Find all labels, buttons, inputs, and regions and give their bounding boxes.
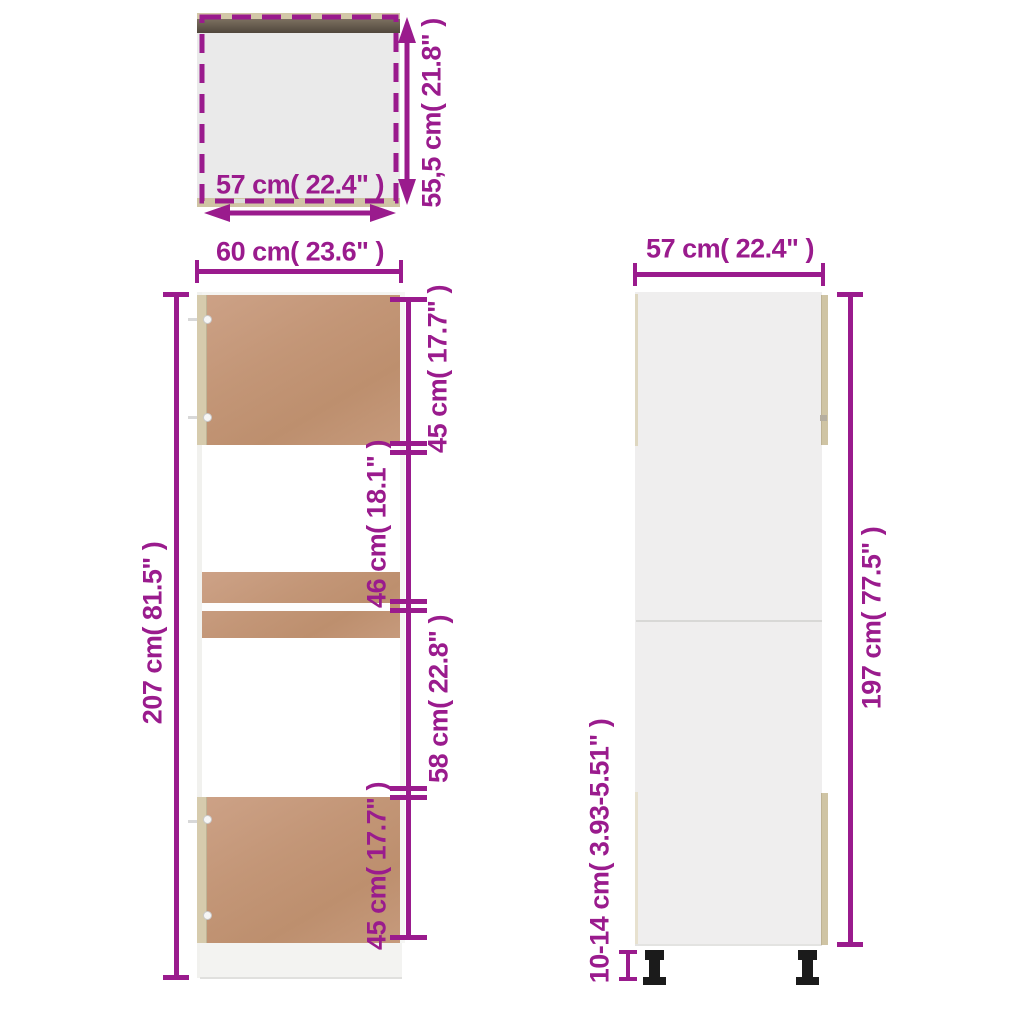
front-width-label: 60 cm( 23.6" ) xyxy=(216,239,384,266)
dim-line xyxy=(633,272,825,277)
side-view-back-edge-top xyxy=(635,294,638,446)
top-depth-arrow xyxy=(395,15,419,207)
hinge-icon xyxy=(203,815,212,824)
front-upper-hinge-mark xyxy=(188,318,197,321)
dim-tick xyxy=(390,795,427,800)
dim-tick xyxy=(390,786,427,791)
side-height-label: 197 cm( 77.5" ) xyxy=(859,527,886,709)
front-segment-label-middle: 58 cm( 22.8" ) xyxy=(426,615,453,783)
adjustable-leg-foot xyxy=(643,977,666,985)
dim-tick xyxy=(390,599,427,604)
adjustable-leg-cap xyxy=(645,950,664,960)
dim-line xyxy=(626,950,630,981)
side-view-back-edge-bottom xyxy=(635,792,638,944)
side-upper-door-edge xyxy=(821,295,828,445)
front-upper-door xyxy=(197,295,400,445)
front-segment-label-lower-door: 45 cm( 17.7" ) xyxy=(364,782,391,950)
hinge-icon xyxy=(203,315,212,324)
hinge-icon xyxy=(203,413,212,422)
dim-tick xyxy=(390,935,427,940)
front-view-carcass-right-edge xyxy=(400,292,405,943)
dim-line xyxy=(174,292,179,980)
dim-line xyxy=(195,269,403,274)
adjustable-leg-foot xyxy=(796,977,819,985)
dim-line xyxy=(406,297,411,940)
dim-tick xyxy=(390,297,427,302)
dim-tick xyxy=(390,608,427,613)
side-view-divider xyxy=(636,620,822,622)
front-segment-label-niche: 46 cm( 18.1" ) xyxy=(364,440,391,608)
side-door-handle-mark xyxy=(820,415,827,421)
front-upper-hinge-mark xyxy=(188,416,197,419)
adjustable-leg-stem xyxy=(649,960,660,977)
front-lower-hinge-mark xyxy=(188,820,197,823)
dim-tick xyxy=(390,450,427,455)
front-height-label: 207 cm( 81.5" ) xyxy=(140,542,167,724)
top-width-arrow xyxy=(202,201,398,225)
hinge-icon xyxy=(203,911,212,920)
dim-line xyxy=(848,292,853,947)
top-depth-label: 55,5 cm( 21.8" ) xyxy=(419,18,446,207)
side-width-label: 57 cm( 22.4" ) xyxy=(646,236,814,263)
side-view-body xyxy=(635,292,822,946)
cabinet-dimension-diagram: 57 cm( 22.4" ) 55,5 cm( 21.8" ) xyxy=(0,0,1024,1024)
side-leg-height-label: 10-14 cm( 3.93-5.51" ) xyxy=(587,719,614,983)
top-width-label: 57 cm( 22.4" ) xyxy=(216,172,384,199)
side-lower-door-edge xyxy=(821,793,828,945)
front-segment-label-upper-door: 45 cm( 17.7" ) xyxy=(425,285,452,453)
adjustable-leg-cap xyxy=(798,950,817,960)
adjustable-leg-stem xyxy=(802,960,813,977)
dim-tick xyxy=(390,441,427,446)
